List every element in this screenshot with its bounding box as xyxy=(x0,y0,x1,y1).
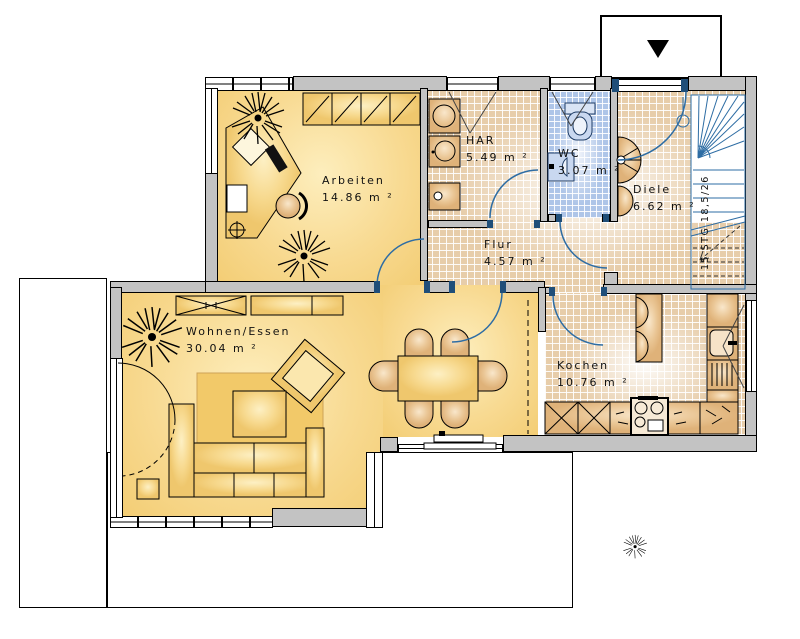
living-side-table xyxy=(137,479,159,499)
stair-annotation: 15 STG 18,5/26 xyxy=(700,145,711,270)
room-label-flur: Flur 4.57 m ² xyxy=(484,236,547,270)
door-arc-arbeiten xyxy=(377,239,424,286)
door-arc-terrace xyxy=(118,363,175,420)
kitchen-counter-east xyxy=(707,294,738,404)
plan-annotations xyxy=(0,0,800,639)
door-arc-terrace-dashed xyxy=(122,420,175,476)
living-sideboard-x xyxy=(176,296,246,315)
living-sideboard xyxy=(251,296,343,315)
room-label-kochen: Kochen 10.76 m ² xyxy=(557,357,629,391)
room-label-arbeiten: Arbeiten 14.86 m ² xyxy=(322,172,394,206)
room-label-diele: Diele 6.62 m ² xyxy=(633,181,696,215)
har-sink-unit xyxy=(429,183,460,210)
room-label-wohnen-essen: Wohnen/Essen 30.04 m ² xyxy=(186,323,291,357)
dining-chair xyxy=(405,401,433,428)
room-label-har: HAR 5.49 m ² xyxy=(466,132,529,166)
dining-chair xyxy=(441,401,469,428)
dining-table-group xyxy=(369,329,507,428)
dining-chair xyxy=(478,361,507,391)
dining-chair xyxy=(369,361,398,391)
plant-arbeiten-floor xyxy=(278,230,330,282)
wc-toilet xyxy=(565,103,595,140)
arbeiten-wardrobe xyxy=(303,93,420,125)
door-arc-kitchen xyxy=(553,295,603,345)
room-label-wc: WC 3.07 m ² xyxy=(558,145,621,179)
dining-table xyxy=(398,356,478,401)
dining-lowboard xyxy=(424,431,496,449)
plant-living xyxy=(122,307,182,367)
door-arc-wc xyxy=(560,221,607,268)
har-dryer xyxy=(429,136,460,167)
diele-half-table xyxy=(618,186,633,216)
living-coffee-table xyxy=(233,391,286,437)
kitchen-stove xyxy=(631,396,668,435)
dining-chair xyxy=(405,329,433,356)
door-arc-har xyxy=(490,170,538,218)
floor-plan: Arbeiten 14.86 m ² HAR 5.49 m ² WC 3.07 … xyxy=(0,0,800,639)
arbeiten-desk xyxy=(226,107,307,239)
table-centerpiece-plant xyxy=(623,535,646,558)
